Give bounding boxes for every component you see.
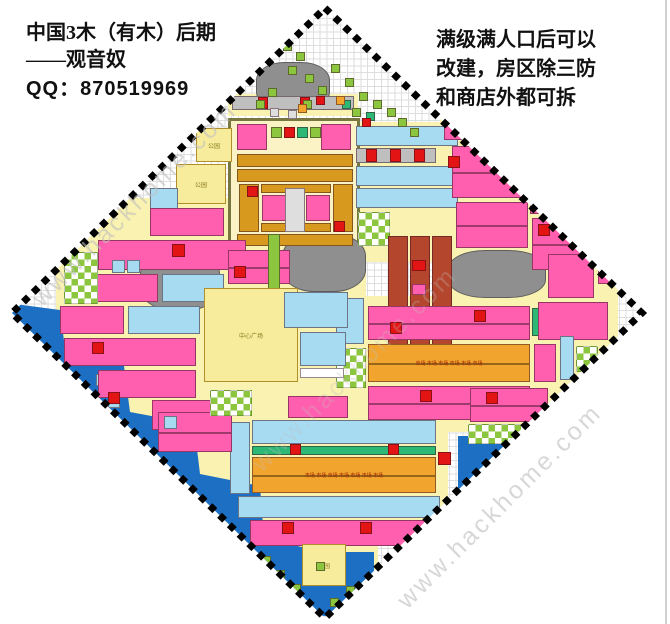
map-cell	[247, 186, 258, 197]
page-edge-line	[665, 0, 667, 624]
map-cell	[108, 392, 120, 404]
map-cell	[345, 78, 354, 87]
page-title: 中国3木（有木）后期	[26, 20, 326, 47]
map-cell	[470, 388, 548, 422]
map-cell	[288, 396, 348, 418]
map-cell	[292, 584, 301, 593]
map-cell	[356, 166, 458, 186]
map-cell	[538, 302, 608, 340]
map-cell	[276, 570, 285, 579]
map-cell	[398, 118, 407, 127]
map-cell	[534, 344, 556, 382]
map-cell	[288, 110, 297, 119]
map-cell	[388, 444, 399, 455]
map-cell	[331, 64, 340, 73]
map-cell	[230, 422, 250, 494]
tip-line: 和商店外都可拆	[436, 84, 662, 113]
map-cell	[548, 254, 594, 298]
map-cell	[504, 118, 546, 156]
map-cell	[412, 260, 426, 271]
map-cell	[164, 416, 177, 429]
map-cell	[112, 260, 125, 273]
map-cell	[60, 306, 124, 334]
map-cell	[452, 146, 526, 198]
map-cell	[222, 540, 288, 598]
map-cell	[420, 390, 432, 402]
map-cell	[438, 452, 451, 465]
screenshot-canvas: 市场 市场 市场 市场 市场 市场公园公园中心广场市场 市场 市场 市场 市场 …	[0, 0, 670, 624]
map-cell	[271, 127, 282, 138]
map-cell	[252, 446, 436, 455]
author-line: ——观音奴	[26, 47, 326, 74]
map-cell	[250, 520, 430, 546]
map-cell	[346, 586, 355, 595]
map-cell	[458, 436, 548, 522]
map-cell	[284, 127, 295, 138]
map-cell	[412, 284, 426, 295]
map-cell: 公园	[196, 128, 232, 162]
map-cell	[390, 149, 401, 162]
map-cell	[356, 188, 458, 208]
map-cell	[336, 96, 345, 105]
map-cell	[330, 598, 339, 607]
map-cell	[456, 202, 528, 248]
map-cell	[290, 444, 301, 455]
map-cell	[352, 108, 361, 117]
title-note-left: 中国3木（有木）后期 ——观音奴 QQ：870519969	[26, 20, 326, 104]
map-cell	[297, 127, 308, 138]
map-cell	[237, 234, 353, 246]
map-cell	[150, 208, 224, 236]
map-cell	[127, 260, 140, 273]
map-cell	[262, 556, 271, 565]
map-cell	[358, 212, 390, 246]
map-cell	[64, 252, 98, 304]
map-cell	[373, 100, 382, 109]
map-cell	[238, 496, 440, 518]
qq-number: QQ：870519969	[26, 74, 326, 104]
map-cell	[360, 522, 372, 534]
map-cell	[128, 306, 200, 334]
map-cell	[486, 392, 498, 404]
map-cell: 市场 市场 市场 市场 市场 市场 市场	[252, 457, 436, 493]
map-cell	[268, 234, 280, 294]
map-cell	[321, 124, 351, 150]
map-cell	[580, 374, 614, 398]
building-label: 公园	[197, 129, 231, 161]
map-cell	[387, 108, 396, 117]
map-cell	[306, 195, 330, 221]
map-cell	[414, 149, 425, 162]
tip-line: 改建，房区除三防	[436, 55, 662, 84]
map-cell: 市场 市场 市场 市场 市场 市场	[368, 344, 530, 382]
map-cell	[474, 310, 486, 322]
map-cell	[172, 244, 185, 257]
map-cell	[356, 126, 458, 146]
map-cell	[410, 128, 419, 137]
map-cell	[298, 104, 307, 113]
map-cell	[538, 224, 550, 236]
map-cell	[448, 156, 460, 168]
map-cell	[310, 127, 321, 138]
map-cell	[530, 170, 584, 214]
map-cell	[390, 322, 402, 334]
map-cell	[237, 124, 267, 150]
map-cell	[576, 346, 598, 372]
map-cell	[468, 424, 546, 444]
map-cell	[270, 108, 279, 117]
map-cell	[284, 292, 348, 328]
building-label: 公园	[177, 165, 225, 203]
map-cell	[237, 169, 353, 182]
map-cell	[300, 368, 344, 378]
map-cell	[334, 221, 345, 232]
map-cell	[234, 266, 246, 278]
map-cell	[359, 92, 368, 101]
map-cell	[252, 420, 436, 444]
map-cell	[210, 390, 252, 416]
map-cell	[64, 338, 196, 366]
map-cell: 公园	[176, 164, 226, 204]
map-cell	[237, 154, 353, 167]
tip-note-right: 满级满人口后可以 改建，房区除三防 和商店外都可拆	[436, 26, 662, 113]
tip-line: 满级满人口后可以	[436, 26, 662, 55]
map-cell	[598, 258, 624, 284]
map-cell	[366, 149, 377, 162]
map-cell	[285, 188, 305, 232]
map-cell	[92, 342, 104, 354]
map-cell	[560, 336, 574, 380]
map-cell	[262, 195, 286, 221]
map-cell	[282, 522, 294, 534]
map-cell	[300, 332, 346, 366]
map-cell	[362, 118, 371, 127]
map-cell	[316, 562, 325, 571]
